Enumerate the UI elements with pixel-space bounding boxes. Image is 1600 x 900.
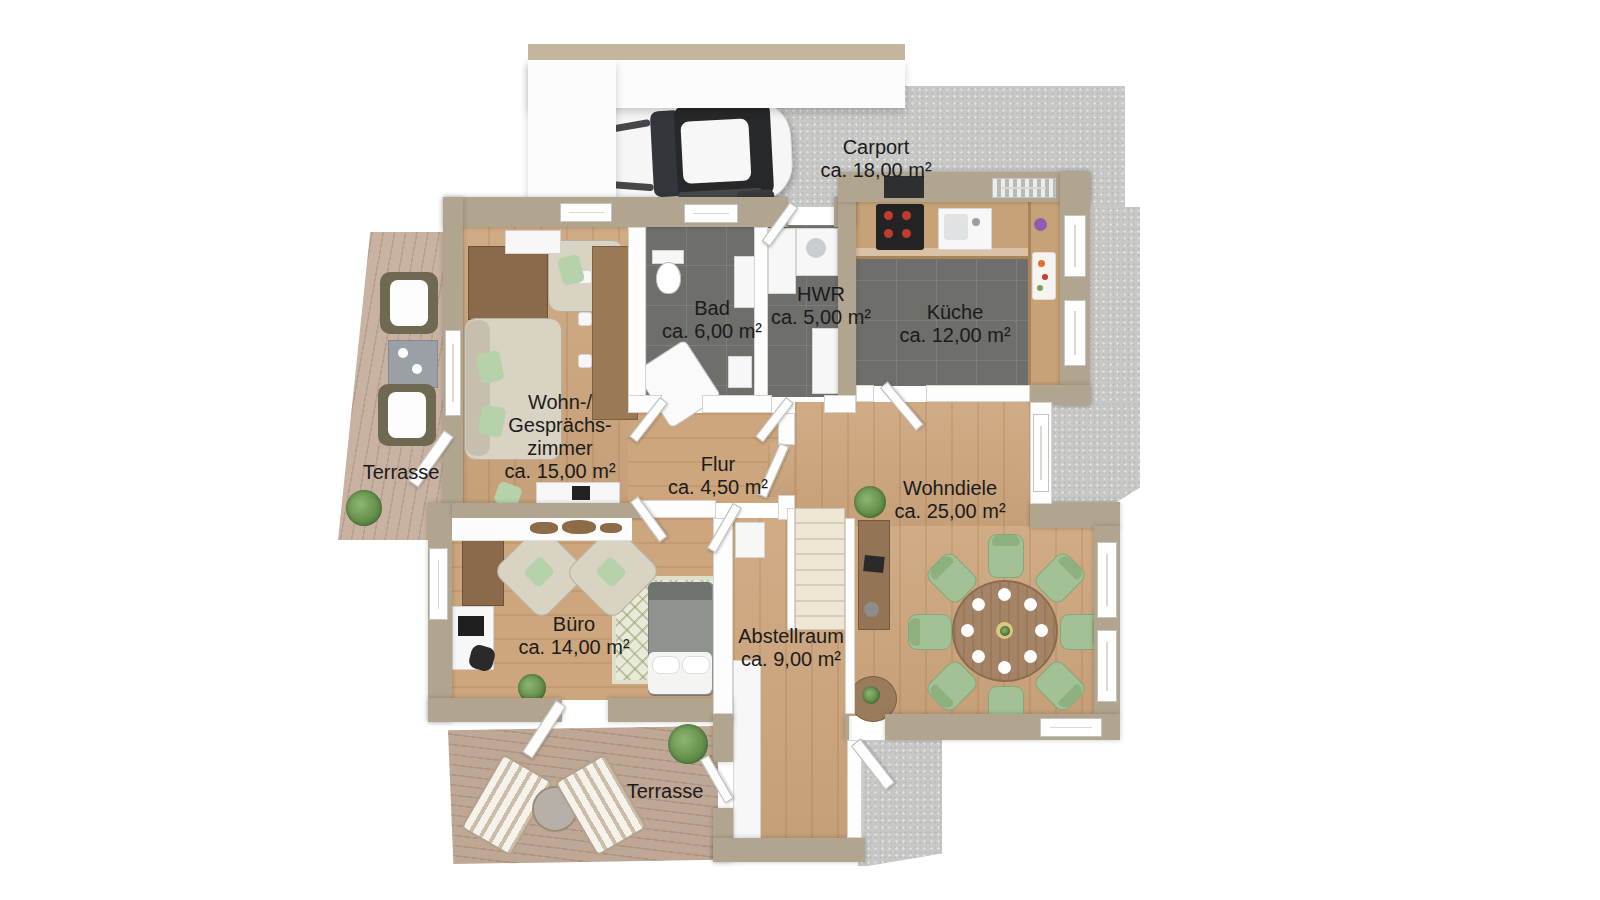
room-name: Terrasse xyxy=(627,780,704,803)
label-buero: Büro ca. 14,00 m² xyxy=(518,613,629,659)
label-terrasse-left: Terrasse xyxy=(363,461,440,484)
plant xyxy=(346,490,382,526)
window xyxy=(1033,414,1049,492)
carport-floor-right xyxy=(1086,207,1140,405)
wall xyxy=(713,714,733,762)
burner xyxy=(884,229,893,238)
burner xyxy=(902,211,911,220)
window xyxy=(445,330,461,416)
room-area: ca. 25,00 m² xyxy=(894,500,1005,523)
washer-door xyxy=(806,238,826,258)
window xyxy=(684,204,738,223)
food-item xyxy=(1037,285,1043,291)
laptop xyxy=(863,555,885,573)
room-name: Bad xyxy=(662,297,762,320)
daybed-headboard xyxy=(648,582,712,600)
room-name: zimmer xyxy=(504,437,615,460)
room-name: Büro xyxy=(518,613,629,636)
burner xyxy=(902,229,911,238)
room-area: ca. 4,50 m² xyxy=(668,476,768,499)
plate xyxy=(1024,598,1037,611)
room-area: ca. 15,00 m² xyxy=(504,460,615,483)
room-name: Wohn-/ xyxy=(504,391,615,414)
plate xyxy=(972,650,985,663)
plant xyxy=(862,686,880,704)
wall xyxy=(926,385,1030,402)
label-wohnzimmer: Wohn-/ Gesprächs- zimmer ca. 15,00 m² xyxy=(504,391,615,483)
label-carport: Carport ca. 18,00 m² xyxy=(820,136,931,182)
window xyxy=(560,203,612,222)
burner xyxy=(884,211,893,220)
sofa-backrest xyxy=(466,320,490,456)
label-bad: Bad ca. 6,00 m² xyxy=(662,297,762,343)
world-map-decal xyxy=(600,523,622,533)
wall xyxy=(845,518,855,714)
room-area: ca. 5,00 m² xyxy=(771,306,871,329)
stool xyxy=(578,312,592,326)
wall xyxy=(702,395,772,413)
room-name: Gesprächs- xyxy=(504,414,615,437)
storage-shelf xyxy=(733,660,761,840)
outdoor-chair-cushion xyxy=(390,280,428,326)
flower-vase xyxy=(1034,218,1047,231)
window xyxy=(1097,542,1117,618)
toilet-bowl xyxy=(656,262,681,294)
table-decor xyxy=(398,348,408,358)
plate xyxy=(961,624,974,637)
window xyxy=(1064,300,1086,366)
world-map-decal xyxy=(562,520,596,534)
faucet xyxy=(972,218,980,226)
wall xyxy=(824,395,856,413)
carport-roof-edge xyxy=(528,44,905,60)
room-name: Flur xyxy=(668,453,768,476)
carport-roof-side xyxy=(528,60,616,210)
room-name: Abstellraum xyxy=(738,625,844,648)
dining-chair xyxy=(988,534,1024,578)
room-name: HWR xyxy=(771,283,871,306)
room-name: Terrasse xyxy=(363,461,440,484)
stair-wall xyxy=(787,508,795,630)
room-area: ca. 12,00 m² xyxy=(899,324,1010,347)
room-area: ca. 6,00 m² xyxy=(662,320,762,343)
label-kueche: Küche ca. 12,00 m² xyxy=(899,301,1010,347)
room-area: ca. 18,00 m² xyxy=(820,159,931,182)
wall xyxy=(856,385,874,402)
room-area: ca. 9,00 m² xyxy=(738,648,844,671)
plate xyxy=(998,661,1011,674)
room-name: Küche xyxy=(899,301,1010,324)
dining-chair xyxy=(908,614,952,650)
wall xyxy=(1030,502,1120,528)
room-name: Carport xyxy=(820,136,931,159)
label-hwr: HWR ca. 5,00 m² xyxy=(771,283,871,329)
room-name: Wohndiele xyxy=(894,477,1005,500)
sideboard xyxy=(468,246,548,320)
printer xyxy=(458,616,484,636)
label-terrasse-bottom: Terrasse xyxy=(627,780,704,803)
stool xyxy=(578,354,592,368)
utility-cabinet xyxy=(812,328,840,394)
plate xyxy=(972,598,985,611)
car-roof-panel xyxy=(680,118,751,183)
wall xyxy=(845,714,849,740)
window xyxy=(992,178,1056,198)
plate xyxy=(1035,624,1048,637)
storage-box xyxy=(735,522,765,558)
wall xyxy=(452,503,650,518)
plate xyxy=(1024,650,1037,663)
centerpiece-plant xyxy=(1000,626,1010,636)
outdoor-chair-cushion xyxy=(388,392,426,438)
cushion xyxy=(478,404,507,438)
sink xyxy=(728,356,752,388)
wall xyxy=(628,227,646,413)
window xyxy=(1097,630,1117,702)
pillow-roll xyxy=(682,656,710,674)
wall xyxy=(713,838,865,862)
label-flur: Flur ca. 4,50 m² xyxy=(668,453,768,499)
decor-disc xyxy=(864,602,879,617)
wall xyxy=(1060,172,1090,405)
food-item xyxy=(1038,260,1045,267)
window xyxy=(1040,718,1102,737)
world-map-decal xyxy=(530,522,558,534)
skylight-panel xyxy=(505,230,561,254)
staircase xyxy=(795,508,845,630)
plant xyxy=(854,486,886,518)
floor-plan: Carport ca. 18,00 m² Bad ca. 6,00 m² HWR… xyxy=(0,0,1600,900)
sink-basin xyxy=(944,214,968,240)
carport-floor-right-lower xyxy=(1052,405,1140,515)
wall xyxy=(428,698,562,722)
window xyxy=(429,548,448,620)
label-wohndiele: Wohndiele ca. 25,00 m² xyxy=(894,477,1005,523)
laptop xyxy=(572,486,590,500)
plate xyxy=(998,588,1011,601)
table-decor xyxy=(412,364,422,374)
pillow-roll xyxy=(652,656,680,674)
room-area: ca. 14,00 m² xyxy=(518,636,629,659)
label-abstellraum: Abstellraum ca. 9,00 m² xyxy=(738,625,844,671)
stove xyxy=(876,204,924,250)
food-item xyxy=(1042,274,1048,280)
window xyxy=(1064,215,1086,277)
